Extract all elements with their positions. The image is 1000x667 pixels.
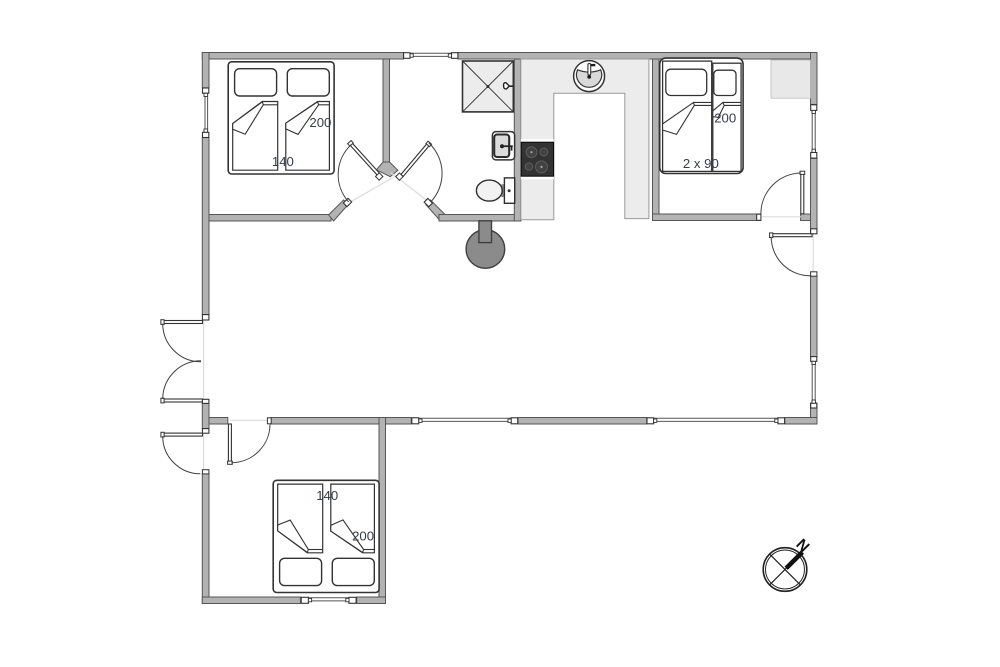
svg-text:140: 140: [272, 154, 294, 169]
svg-text:200: 200: [309, 115, 331, 130]
svg-text:2 x 90: 2 x 90: [683, 156, 719, 171]
svg-text:200: 200: [352, 529, 374, 544]
svg-text:200: 200: [714, 111, 736, 126]
svg-text:140: 140: [316, 488, 338, 503]
